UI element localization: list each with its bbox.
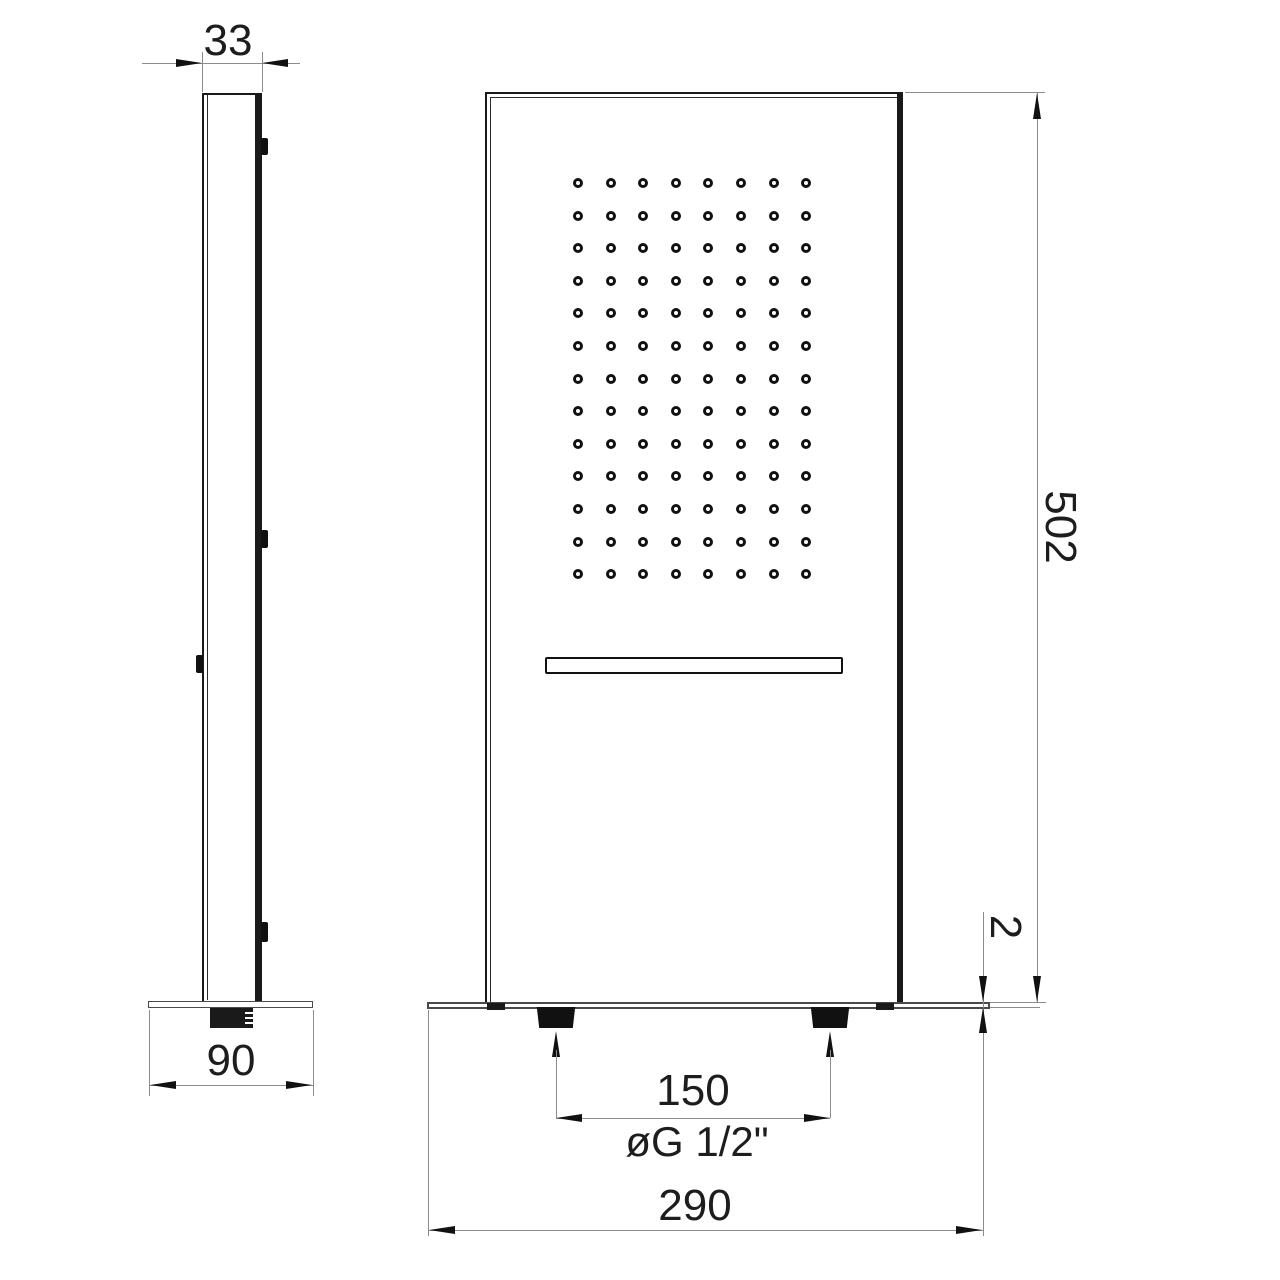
arrowhead-width-left — [429, 1226, 455, 1234]
nozzle-dot — [769, 211, 779, 221]
nozzle-dot — [573, 374, 583, 384]
nozzle-dot — [606, 211, 616, 221]
nozzle-dot — [638, 276, 648, 286]
waterfall-slot — [545, 657, 843, 674]
nozzle-dot — [671, 537, 681, 547]
nozzle-dot — [573, 471, 583, 481]
nozzle-dot — [736, 406, 746, 416]
thread-notch-1 — [245, 1012, 253, 1014]
dim-plate-thickness-label: 2 — [983, 897, 1027, 957]
nozzle-dot — [703, 504, 713, 514]
front-panel-left-inner-line — [490, 97, 491, 1002]
ext-line-depth-right — [262, 52, 263, 92]
nozzle-dot — [606, 341, 616, 351]
nozzle-dot — [801, 569, 811, 579]
nozzle-dot — [638, 178, 648, 188]
nozzle-dot — [801, 471, 811, 481]
nozzle-dot — [703, 276, 713, 286]
nozzle-dot — [606, 243, 616, 253]
nozzle-dot — [703, 341, 713, 351]
nozzle-dot — [703, 471, 713, 481]
mount-tab-right-top — [261, 138, 268, 155]
nozzle-dot — [703, 178, 713, 188]
dim-width-label: 290 — [635, 1184, 755, 1228]
nozzle-dot — [671, 178, 681, 188]
nozzle-dot — [573, 406, 583, 416]
dim-base-width-label: 90 — [171, 1039, 291, 1083]
nozzle-dot — [638, 308, 648, 318]
nozzle-dot — [769, 537, 779, 547]
nozzle-dot — [736, 374, 746, 384]
dim-height-label: 502 — [1038, 457, 1082, 597]
arrowhead-height-top — [1033, 93, 1041, 119]
nozzle-dot — [801, 243, 811, 253]
nozzle-dot — [606, 406, 616, 416]
nozzle-dot — [769, 374, 779, 384]
nozzle-dot — [769, 243, 779, 253]
side-panel-top-edge — [202, 93, 262, 95]
ext-line-width-right — [983, 912, 984, 1236]
nozzle-dot — [573, 341, 583, 351]
water-inlet-left — [536, 1007, 576, 1028]
nozzle-dot — [769, 569, 779, 579]
nozzle-dot — [703, 537, 713, 547]
nozzle-dot — [671, 504, 681, 514]
nozzle-dot — [736, 178, 746, 188]
thread-size-label: øG 1/2" — [597, 1121, 797, 1163]
nozzle-dot — [606, 537, 616, 547]
plate-ext-line-top — [990, 1002, 1046, 1003]
nozzle-dot — [736, 471, 746, 481]
nozzle-dot — [801, 439, 811, 449]
nozzle-dot — [769, 308, 779, 318]
nozzle-dot — [638, 243, 648, 253]
nozzle-dot — [736, 341, 746, 351]
nozzle-dot — [638, 471, 648, 481]
arrowhead-plate-up — [979, 1007, 987, 1033]
nozzle-dot — [703, 439, 713, 449]
side-panel-back-edge — [202, 93, 204, 1002]
nozzle-dot — [703, 211, 713, 221]
nozzle-dot — [769, 341, 779, 351]
nozzle-dot — [573, 178, 583, 188]
arrowhead-height-bottom — [1033, 976, 1041, 1002]
nozzle-dot — [769, 471, 779, 481]
side-panel-back-inner-line — [207, 95, 208, 1000]
dim-depth-label: 33 — [168, 19, 288, 63]
nozzle-dot — [638, 374, 648, 384]
nozzle-dot — [671, 374, 681, 384]
dim-line-width — [428, 1230, 983, 1231]
nozzle-dot — [606, 439, 616, 449]
nozzle-dot — [671, 569, 681, 579]
dim-inlet-spacing-label: 150 — [633, 1069, 753, 1113]
nozzle-dot — [671, 243, 681, 253]
nozzle-dot — [606, 374, 616, 384]
nozzle-dot — [736, 537, 746, 547]
nozzle-dot — [769, 276, 779, 286]
arrowhead-width-right — [956, 1226, 982, 1234]
nozzle-dot — [606, 569, 616, 579]
nozzle-dot — [671, 439, 681, 449]
ext-line-width-left — [428, 1010, 429, 1236]
nozzle-dot — [801, 406, 811, 416]
front-panel-top-inner-line — [490, 97, 897, 98]
ext-line-inlet-left — [556, 1050, 557, 1118]
front-plate-bottom-line — [427, 1007, 990, 1009]
nozzle-dot — [769, 439, 779, 449]
arrowhead-depth-right — [262, 59, 288, 67]
nozzle-dot — [606, 178, 616, 188]
nozzle-dot — [801, 537, 811, 547]
dim-plate-thickness-text: 2 — [983, 915, 1027, 939]
nozzle-dot — [769, 406, 779, 416]
nozzle-dot — [638, 341, 648, 351]
side-base-plate — [148, 1001, 313, 1008]
nozzle-dot — [801, 341, 811, 351]
nozzle-dot — [573, 211, 583, 221]
nozzle-dot — [736, 504, 746, 514]
technical-drawing-canvas: 33 90 — [0, 0, 1280, 1280]
nozzle-dot — [606, 308, 616, 318]
panel-foot-right — [876, 1003, 894, 1010]
front-panel-top-edge — [485, 92, 903, 94]
nozzle-dot — [638, 537, 648, 547]
nozzle-dot — [638, 504, 648, 514]
nozzle-dot — [606, 471, 616, 481]
arrowhead-plate-down — [979, 976, 987, 1002]
nozzle-dot — [703, 406, 713, 416]
mount-tab-left — [196, 655, 203, 673]
nozzle-dot — [638, 569, 648, 579]
dim-height-text: 502 — [1038, 490, 1082, 563]
arrowhead-depth-left — [176, 59, 202, 67]
nozzle-dot — [801, 504, 811, 514]
nozzle-dot — [638, 439, 648, 449]
nozzle-dot — [801, 374, 811, 384]
nozzle-dot — [736, 211, 746, 221]
ext-line-inlet-right — [830, 1050, 831, 1118]
nozzle-dot — [606, 504, 616, 514]
mount-tab-right-bottom — [261, 922, 268, 942]
nozzle-dot — [573, 439, 583, 449]
nozzle-dot — [671, 276, 681, 286]
ext-line-base-right — [313, 1010, 314, 1096]
arrowhead-inlet-spacing-left — [556, 1114, 582, 1122]
panel-foot-left — [487, 1003, 505, 1010]
nozzle-dot — [703, 569, 713, 579]
nozzle-dot — [801, 211, 811, 221]
nozzle-dot — [769, 178, 779, 188]
nozzle-dot — [606, 276, 616, 286]
nozzle-dot — [573, 276, 583, 286]
front-plate-left-edge — [427, 1002, 429, 1009]
plate-ext-line-bottom — [990, 1007, 1040, 1008]
nozzle-dot — [736, 308, 746, 318]
nozzle-dot — [573, 504, 583, 514]
nozzle-dot — [703, 308, 713, 318]
nozzle-dot — [671, 211, 681, 221]
nozzle-dot — [671, 308, 681, 318]
nozzle-dot — [638, 406, 648, 416]
nozzle-dot — [573, 243, 583, 253]
nozzle-dot — [736, 569, 746, 579]
nozzle-dot — [736, 276, 746, 286]
nozzle-dot — [573, 569, 583, 579]
nozzle-dot — [573, 308, 583, 318]
mount-tab-right-middle — [261, 530, 268, 548]
nozzle-dot — [801, 276, 811, 286]
nozzle-dot — [801, 308, 811, 318]
nozzle-dot — [671, 471, 681, 481]
arrowhead-inlet-spacing-right — [804, 1114, 830, 1122]
nozzle-dot — [638, 211, 648, 221]
nozzle-dot — [736, 243, 746, 253]
nozzle-dot — [769, 504, 779, 514]
front-panel-left-edge — [485, 92, 487, 1002]
front-plate-top-line — [427, 1002, 990, 1004]
nozzle-dot — [801, 178, 811, 188]
nozzle-dot — [703, 374, 713, 384]
nozzle-dot — [703, 243, 713, 253]
thread-notch-2 — [245, 1017, 253, 1019]
ext-line-depth-left — [202, 52, 203, 92]
thread-notch-3 — [245, 1022, 253, 1024]
ext-line-height-top — [905, 92, 1045, 93]
nozzle-dot — [671, 341, 681, 351]
water-inlet-right — [810, 1007, 850, 1028]
front-panel-right-edge — [897, 92, 903, 1002]
nozzle-dot — [736, 439, 746, 449]
nozzle-dot — [573, 537, 583, 547]
nozzle-dot — [671, 406, 681, 416]
